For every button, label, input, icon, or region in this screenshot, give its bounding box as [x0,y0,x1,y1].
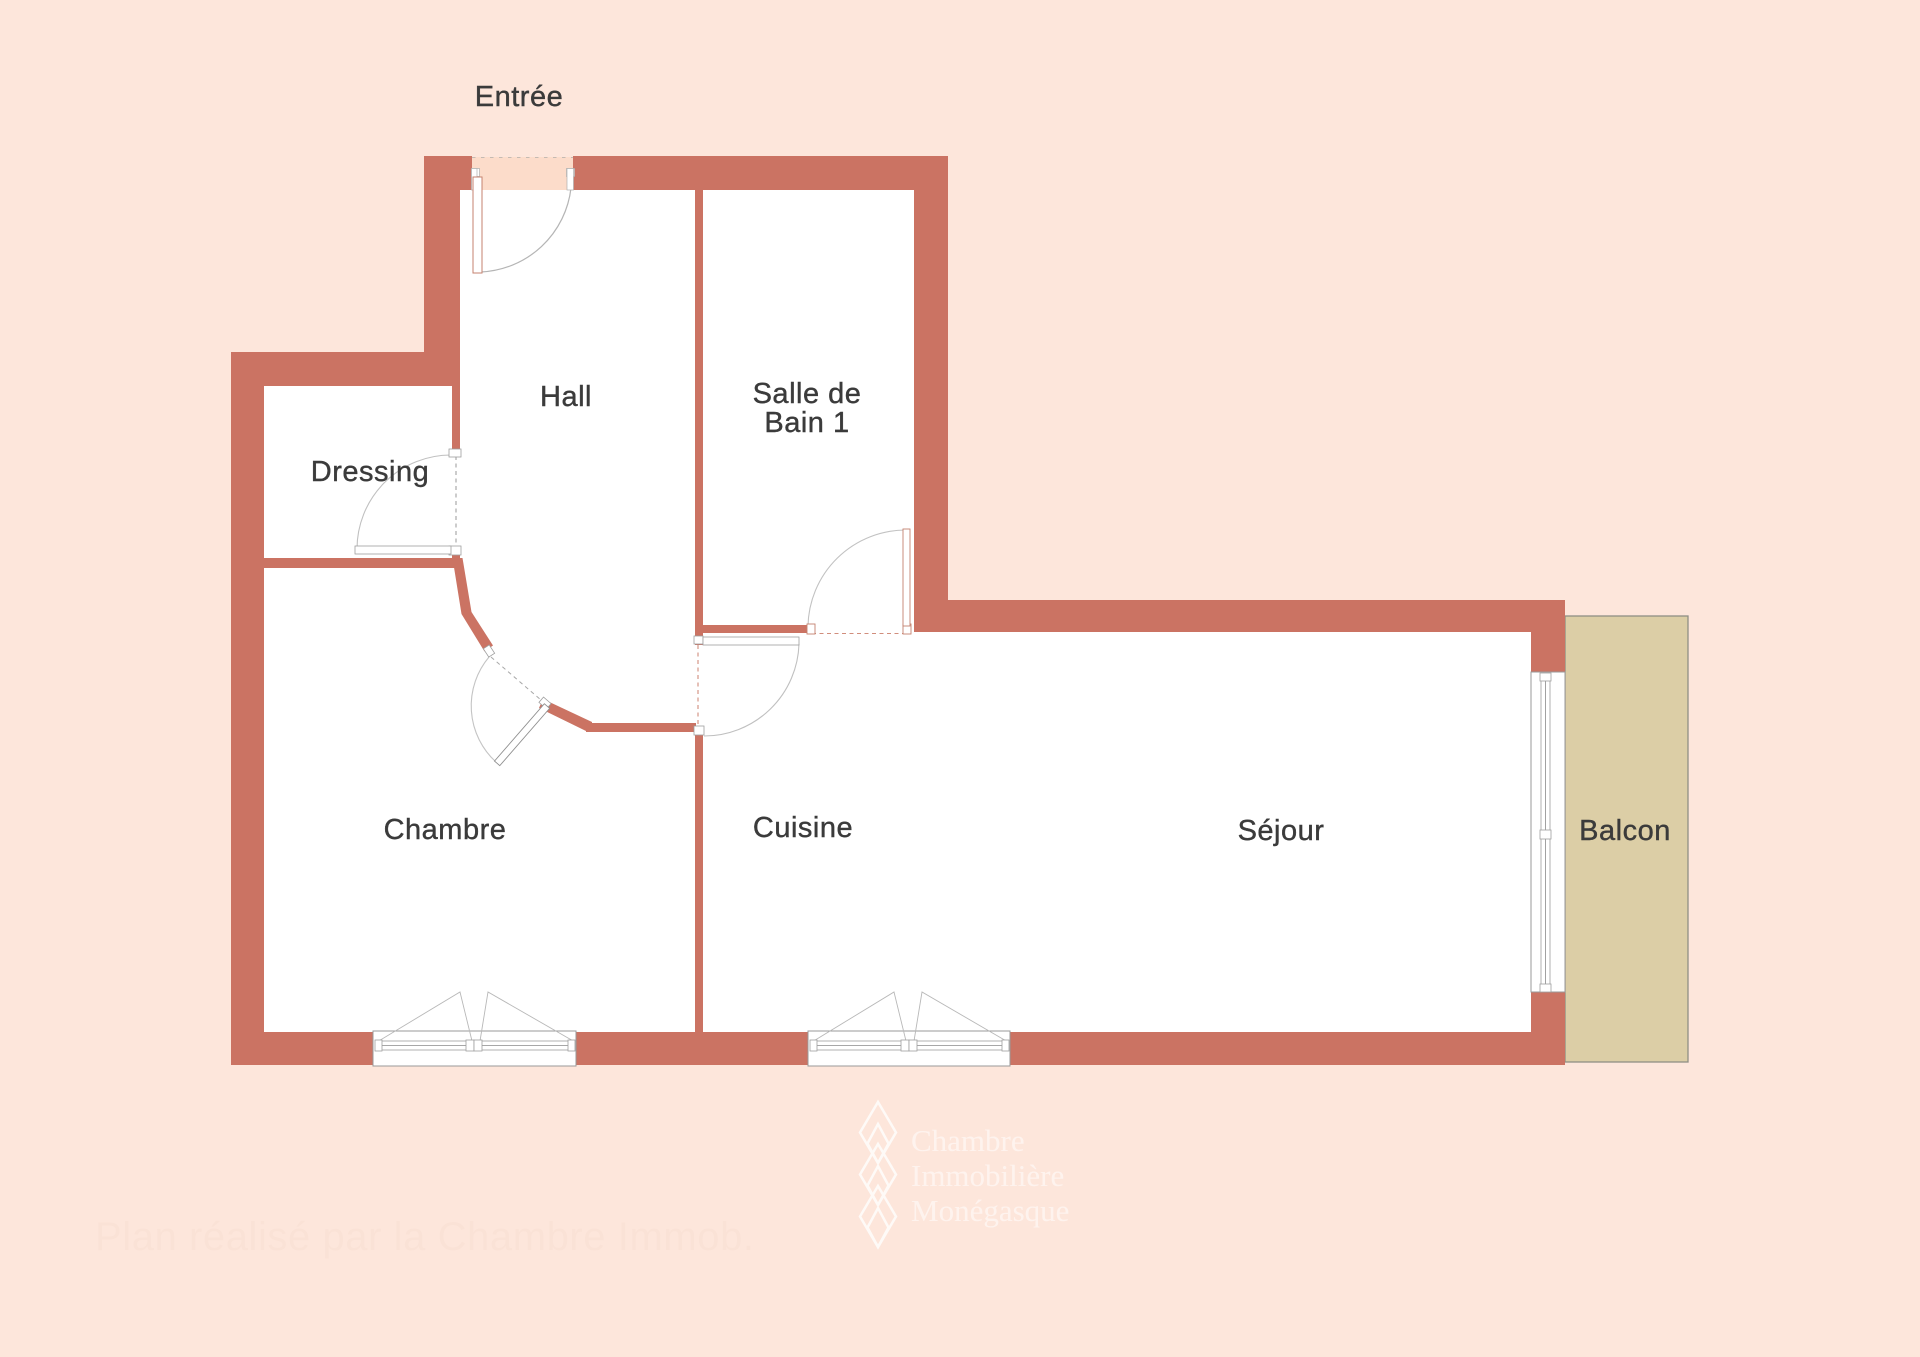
svg-text:Cuisine: Cuisine [753,812,853,844]
svg-text:Balcon: Balcon [1579,815,1671,847]
svg-text:Chambre: Chambre [384,814,507,846]
svg-text:Séjour: Séjour [1238,815,1325,847]
svg-text:Entrée: Entrée [475,81,563,113]
svg-text:Immobilière: Immobilière [911,1158,1064,1193]
svg-text:Dressing: Dressing [311,456,429,488]
svg-text:Monégasque: Monégasque [911,1193,1069,1228]
svg-text:Plan réalisé par la Chambre Im: Plan réalisé par la Chambre Immob. [95,1215,755,1259]
svg-text:Chambre: Chambre [911,1123,1025,1158]
svg-text:Bain 1: Bain 1 [764,407,849,439]
svg-text:Salle de: Salle de [753,378,862,410]
svg-text:Hall: Hall [540,381,592,413]
